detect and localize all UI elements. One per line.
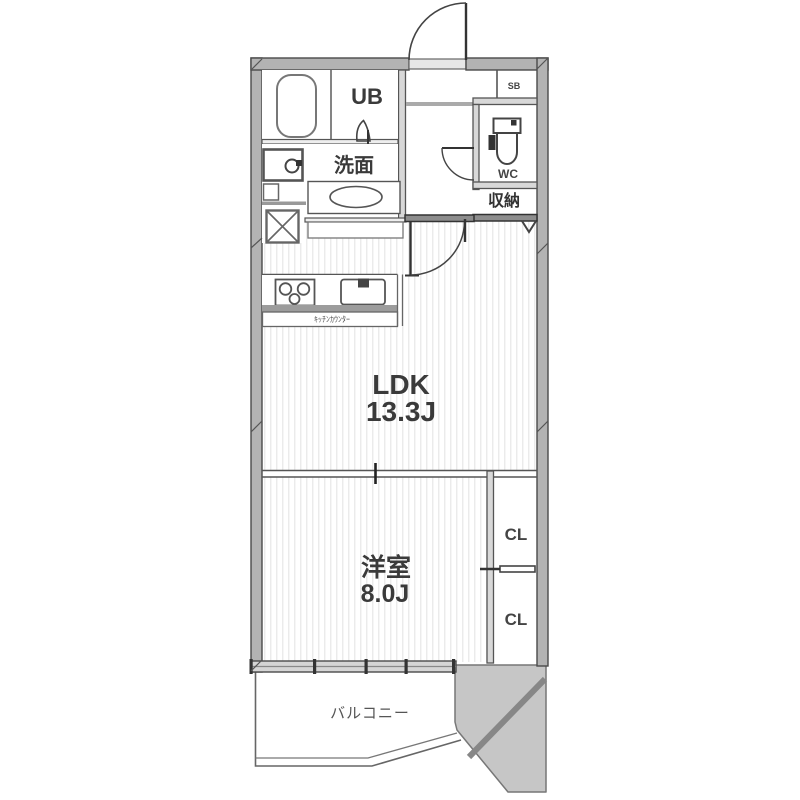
svg-text:ｷｯﾁﾝｶｳﾝﾀｰ: ｷｯﾁﾝｶｳﾝﾀｰ [314,315,350,324]
svg-text:WC: WC [498,167,518,181]
svg-text:13.3J: 13.3J [366,396,436,427]
svg-text:UB: UB [351,84,383,109]
svg-text:CL: CL [505,610,528,629]
svg-text:洋室: 洋室 [361,553,411,582]
svg-text:収納: 収納 [488,191,520,210]
svg-text:洗面: 洗面 [334,154,374,177]
svg-text:CL: CL [505,525,528,544]
svg-text:8.0J: 8.0J [361,580,410,608]
svg-text:SB: SB [508,81,521,91]
svg-text:バルコニー: バルコニー [330,705,410,722]
